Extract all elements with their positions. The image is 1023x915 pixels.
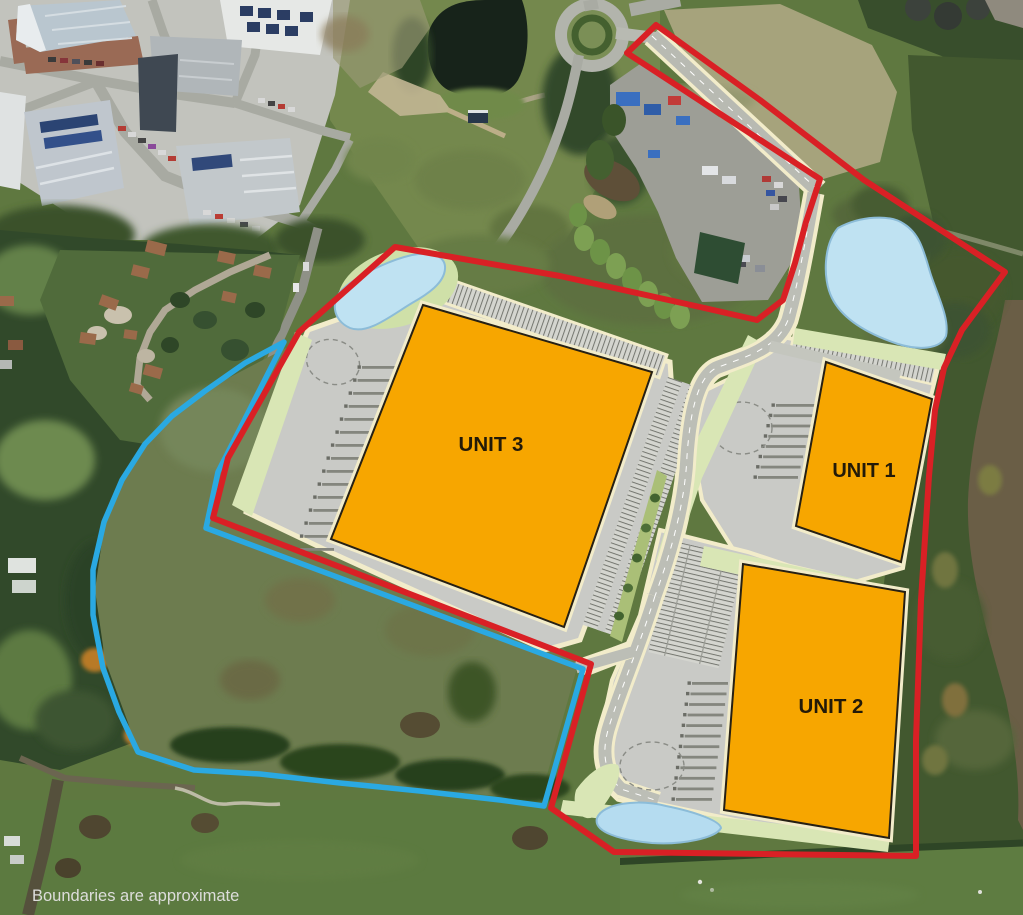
svg-text:UNIT 2: UNIT 2 — [799, 695, 864, 718]
svg-text:UNIT 3: UNIT 3 — [459, 433, 524, 456]
svg-text:Boundaries are approximate: Boundaries are approximate — [32, 887, 239, 905]
svg-text:UNIT 1: UNIT 1 — [832, 460, 895, 482]
